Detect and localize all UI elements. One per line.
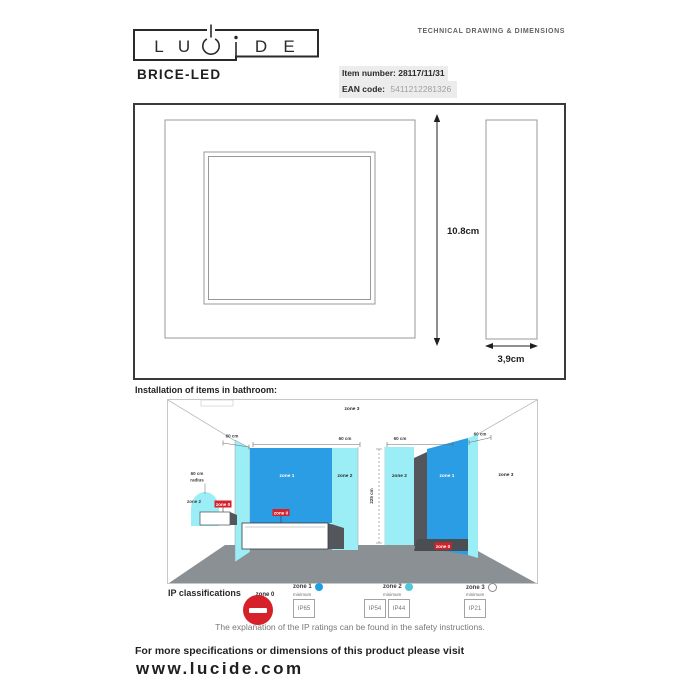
ean-line: EAN code: 5411212281326 — [339, 81, 457, 98]
radius-label-line2: radius — [190, 478, 204, 483]
item-number-label: Item number: — [342, 68, 396, 78]
height-dimension-label: 10.8cm — [447, 226, 479, 237]
ip-zone1-label: zone 1 — [293, 584, 312, 590]
ean-label: EAN code: — [342, 84, 385, 94]
product-name: BRICE-LED — [137, 67, 221, 82]
bathroom-section-title: Installation of items in bathroom: — [135, 385, 277, 395]
logo-letter: L — [154, 37, 163, 56]
logo-letter: E — [283, 37, 294, 56]
lucide-logo: L U D E — [132, 24, 322, 64]
ip-zone2-boxes: IP54 IP44 — [364, 599, 410, 618]
zone2-label: zone 2 — [187, 499, 202, 504]
ean-value: 5411212281326 — [387, 82, 454, 97]
shower-zone1-panel — [427, 438, 468, 555]
depth-dimension-label: 3,9cm — [498, 354, 525, 365]
ip-zone2-minimum: minimum — [383, 592, 401, 597]
bathroom-zones-diagram: zone 3 225 cm 60 cm 60 — [167, 399, 538, 584]
zone3-label: zone 3 — [499, 472, 514, 478]
wall-top-face — [201, 400, 233, 406]
zone1-label: zone 1 — [440, 473, 455, 479]
dim-60-label: 60 cm — [226, 434, 239, 439]
ceiling-zone-label: zone 3 — [345, 406, 360, 412]
ip-rating-box: IP54 — [364, 599, 386, 618]
doc-type-header: TECHNICAL DRAWING & DIMENSIONS — [418, 28, 565, 35]
ip-zone3-label: zone 3 — [466, 585, 485, 591]
logo-letter-c-pendant — [203, 39, 219, 54]
ip-zone3-minimum: minimum — [466, 592, 484, 597]
logo-letter: U — [178, 37, 190, 56]
dim-60-label: 60 cm — [474, 432, 487, 437]
website-url: www.lucide.com — [136, 659, 304, 679]
ip-zone1-minimum: minimum — [293, 592, 311, 597]
zone2-dot-icon — [405, 583, 413, 591]
ip-zone2-label: zone 2 — [383, 584, 402, 590]
ip-classifications-title: IP classifications — [168, 588, 241, 598]
no-entry-bar — [249, 608, 267, 613]
ip-zone1-header: zone 1 — [293, 583, 323, 591]
technical-sheet-page: L U D E TECHNICAL DRAWING & DIMENSIONS B… — [0, 0, 700, 700]
technical-drawing: 10.8cm 3,9cm — [133, 103, 566, 380]
ip-rating-box: IP44 — [388, 599, 410, 618]
dim-60-label: 60 cm — [339, 436, 352, 441]
dim-60-label: 60 cm — [394, 436, 407, 441]
ip-rating-box: IP65 — [293, 599, 315, 618]
no-entry-icon — [243, 595, 273, 625]
logo-letter: D — [255, 37, 267, 56]
zone1-label: zone 1 — [280, 473, 295, 479]
footer-text: For more specifications or dimensions of… — [135, 645, 464, 657]
logo-letter-i-dot — [234, 36, 237, 39]
bath-wall-zone1 — [250, 448, 332, 523]
ip-rating-box: IP21 — [464, 599, 486, 618]
item-number-value: 28117/11/31 — [398, 68, 444, 78]
height-225-label: 225 cm — [369, 488, 374, 503]
zone0-badge-label: zone 0 — [216, 502, 231, 507]
ip-zone2-header: zone 2 — [383, 583, 413, 591]
item-info-block: Item number: 28117/11/31 EAN code: 54112… — [339, 66, 457, 98]
zone0-badge-label: zone 0 — [436, 544, 451, 549]
washbasin — [200, 512, 230, 525]
shower-dark-panel — [414, 452, 427, 548]
zone0-badge-label: zone 0 — [274, 510, 289, 515]
zone3-dot-icon — [488, 583, 497, 592]
item-number-line: Item number: 28117/11/31 — [339, 66, 457, 81]
zone2-label: zone 2 — [392, 473, 407, 479]
zone2-label: zone 2 — [338, 473, 353, 479]
right-wall-zone2-strip — [468, 434, 478, 558]
shower-zone2-panel — [385, 447, 414, 545]
ip-ratings-note: The explanation of the IP ratings can be… — [0, 622, 700, 632]
radius-label-line1: 60 cm — [191, 471, 204, 476]
zone1-dot-icon — [315, 583, 323, 591]
